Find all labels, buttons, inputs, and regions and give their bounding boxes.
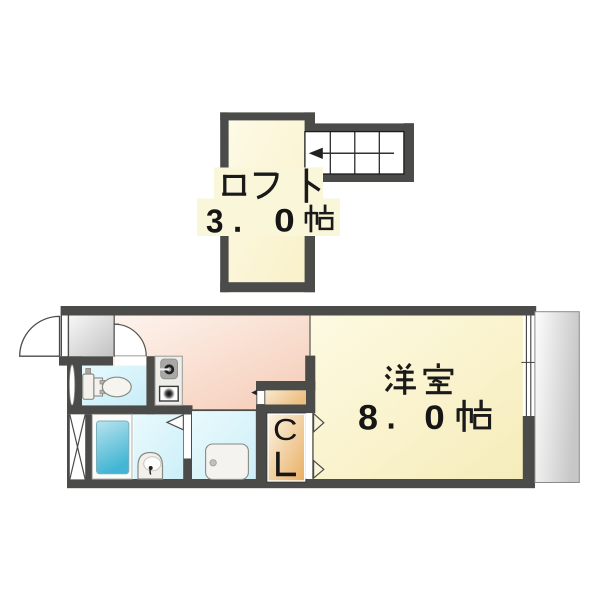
svg-text:0: 0: [424, 399, 445, 437]
svg-text:C: C: [273, 413, 298, 447]
svg-text:0: 0: [274, 202, 295, 238]
svg-text:3: 3: [206, 203, 224, 240]
svg-text:8: 8: [358, 398, 378, 437]
